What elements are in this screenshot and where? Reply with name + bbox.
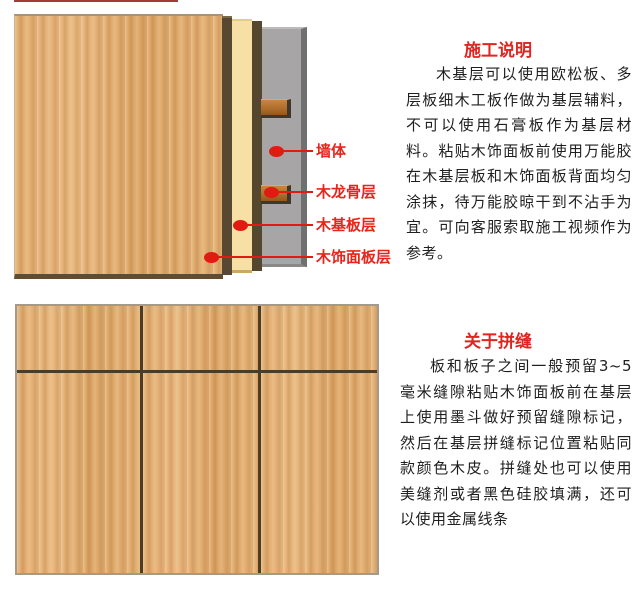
wall-layer (262, 27, 307, 267)
panel-cell-r2c3 (261, 373, 377, 573)
instruction-infographic: 墙体 木龙骨层 木基板层 木饰面板层 施工说明 木基层可以使用欧松板、多层板细木… (0, 0, 640, 598)
layer-label-keel: 木龙骨层 (316, 184, 376, 201)
panel-cell-r1c3 (261, 306, 377, 370)
construction-notes-body: 木基层可以使用欧松板、多层板细木工板作做为基层辅料，不可以使用石膏板作为基层材料… (406, 62, 632, 266)
layer-label-base: 木基板层 (316, 217, 376, 234)
veneer-panel-edge (222, 16, 232, 275)
base-board-edge (252, 21, 262, 271)
panel-cell-r1c2 (143, 306, 258, 370)
panel-cell-r2c2 (143, 373, 258, 573)
panel-cell-r2c1 (17, 373, 140, 573)
wood-keel-block-top (261, 99, 291, 118)
seam-notes-body: 板和板子之间一般预留3~5毫米缝隙粘贴木饰面板前在基层上使用墨斗做好预留缝隙标记… (400, 354, 632, 533)
callout-line-veneer (217, 256, 313, 258)
top-crop-line (14, 0, 178, 2)
layer-label-veneer: 木饰面板层 (316, 249, 391, 266)
callout-line-wall (282, 150, 313, 152)
panel-cell-r1c1 (17, 306, 140, 370)
veneer-panel-layer (14, 14, 223, 279)
callout-line-keel (277, 191, 313, 193)
construction-notes-title: 施工说明 (380, 36, 616, 61)
seam-notes-title: 关于拼缝 (380, 327, 616, 352)
layer-label-wall: 墙体 (316, 143, 346, 160)
seam-panel-illustration (15, 304, 379, 575)
callout-line-base (246, 224, 313, 226)
base-board-layer (232, 19, 252, 273)
